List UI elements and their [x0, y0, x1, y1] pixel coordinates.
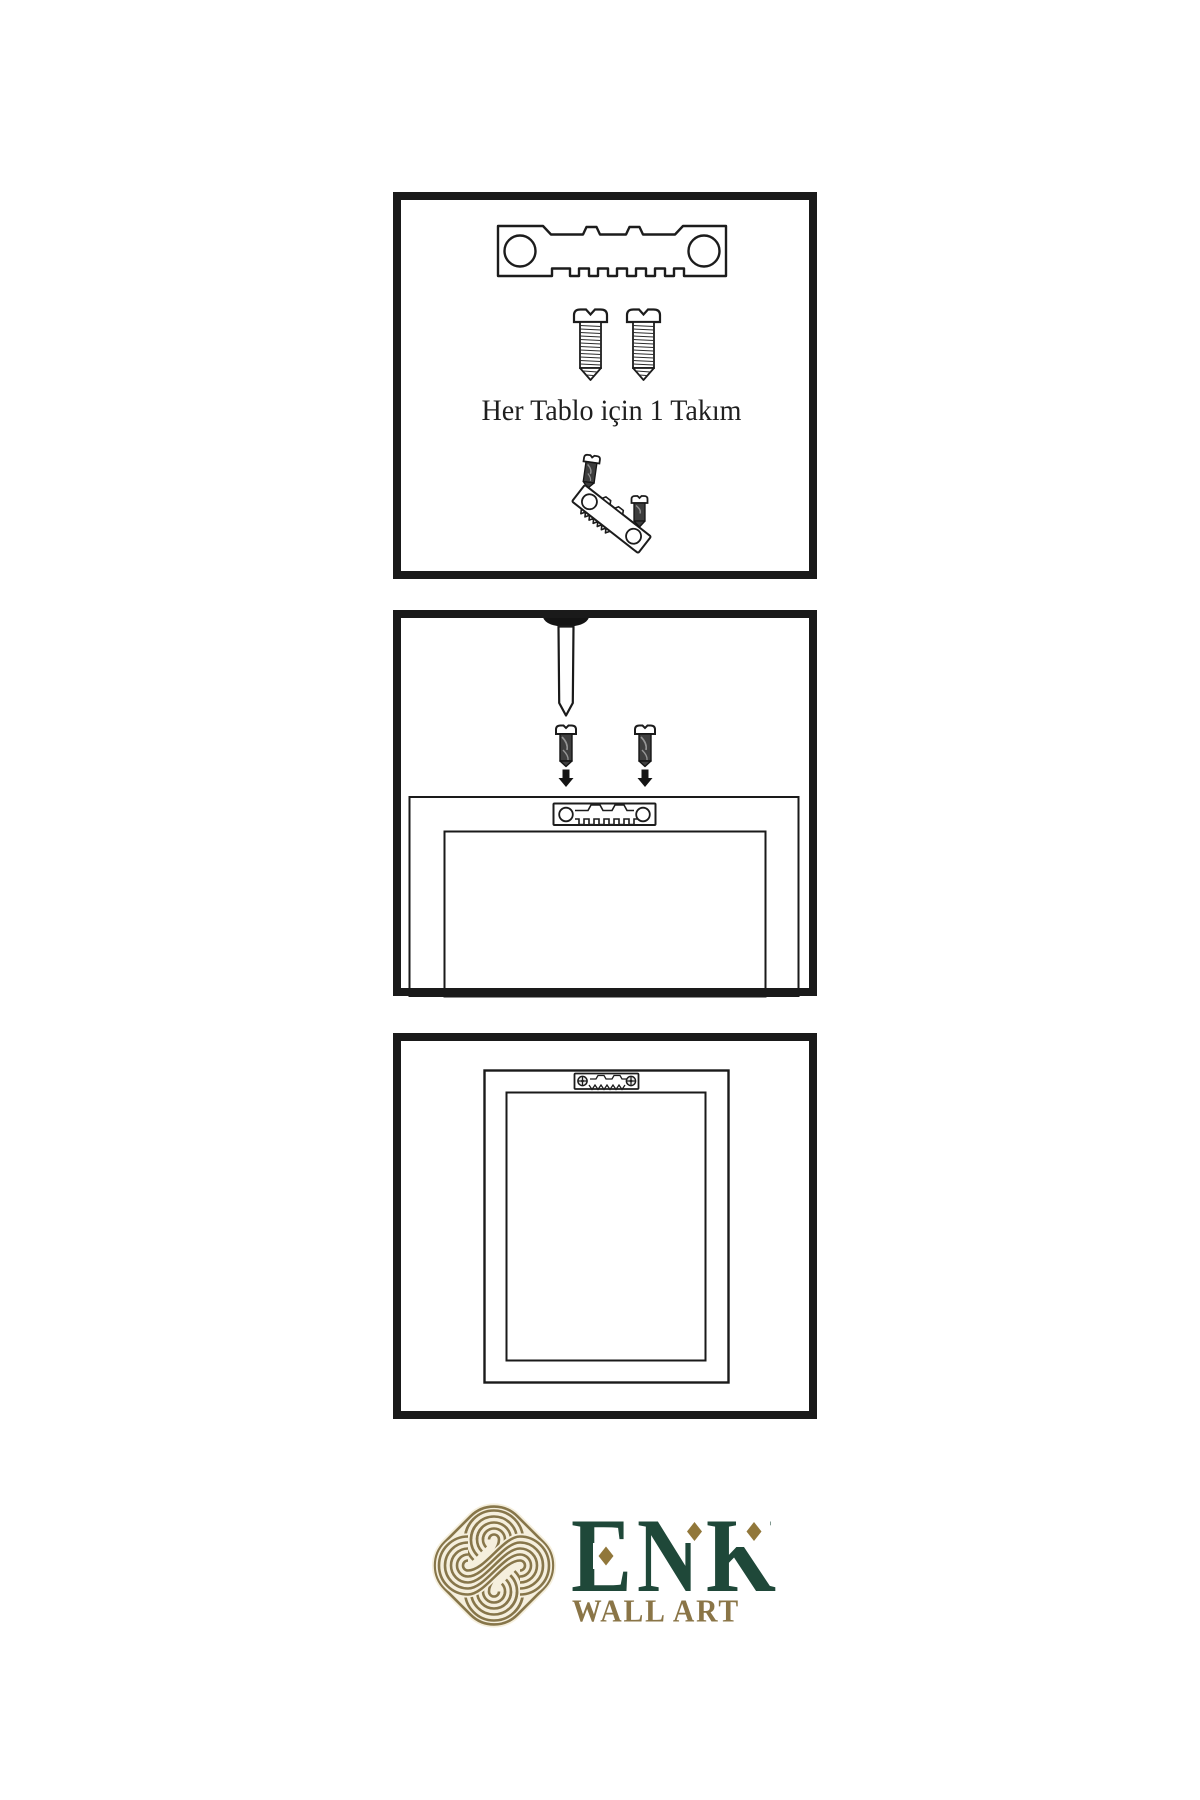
svg-text:Her Tablo için 1 Takım: Her Tablo için 1 Takım	[482, 394, 742, 427]
svg-text:WALL ART: WALL ART	[572, 1593, 740, 1629]
